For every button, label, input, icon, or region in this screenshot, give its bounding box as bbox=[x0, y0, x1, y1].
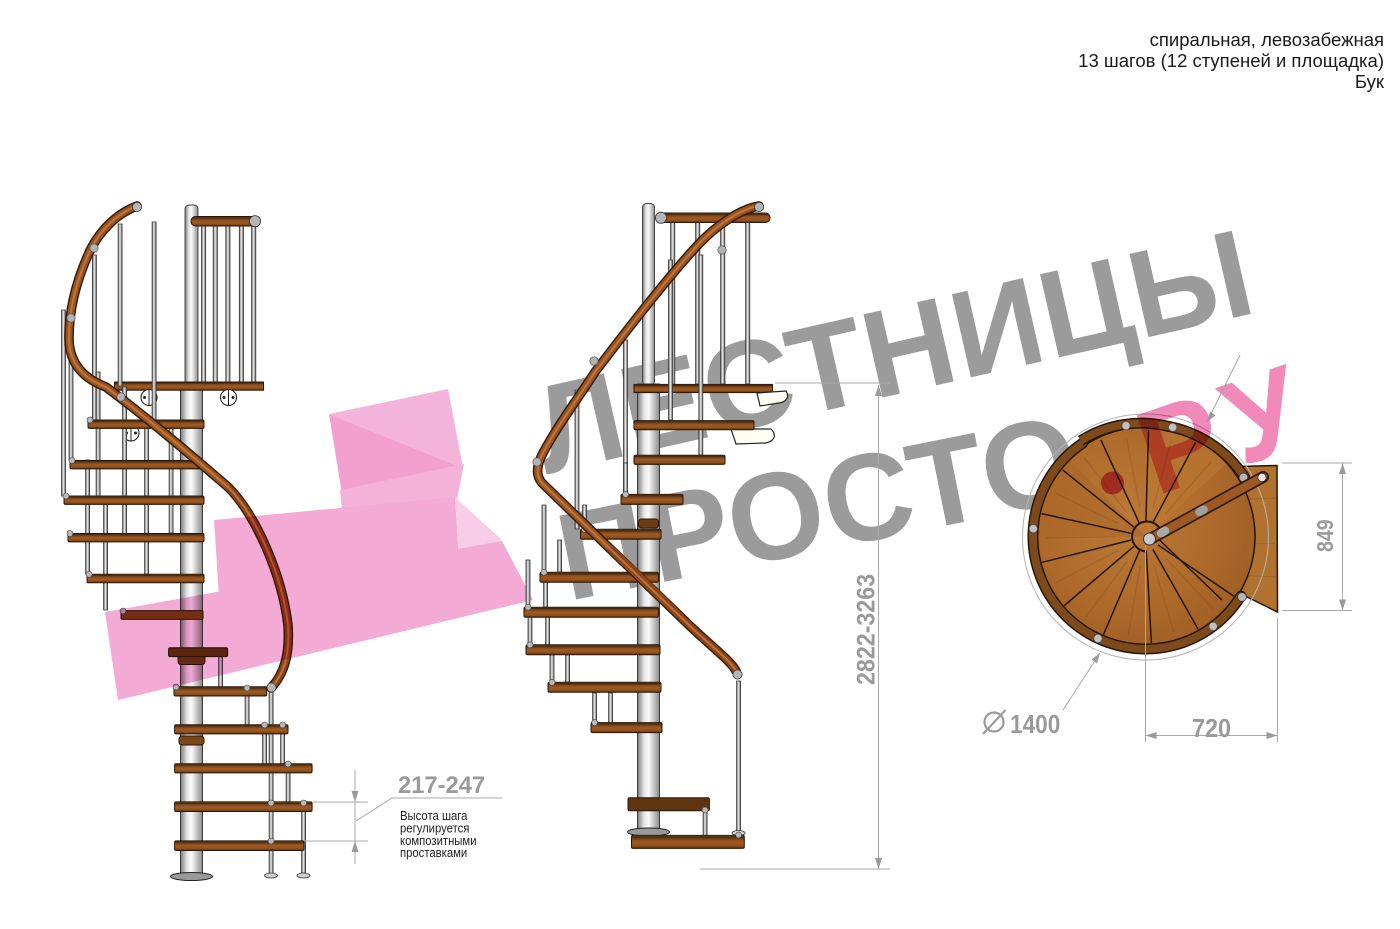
svg-text:13 шагов (12 ступеней и площад: 13 шагов (12 ступеней и площадка) bbox=[1078, 50, 1384, 71]
svg-text:720: 720 bbox=[1192, 715, 1231, 743]
svg-text:спиральная, левозабежная: спиральная, левозабежная bbox=[1150, 29, 1384, 50]
svg-text:Бук: Бук bbox=[1355, 71, 1385, 92]
svg-text:849: 849 bbox=[1313, 519, 1339, 552]
svg-text:2822-3263: 2822-3263 bbox=[853, 574, 881, 685]
svg-text:проставками: проставками bbox=[400, 845, 467, 860]
svg-text:217-247: 217-247 bbox=[398, 772, 485, 799]
svg-text:1400: 1400 bbox=[1010, 711, 1060, 740]
